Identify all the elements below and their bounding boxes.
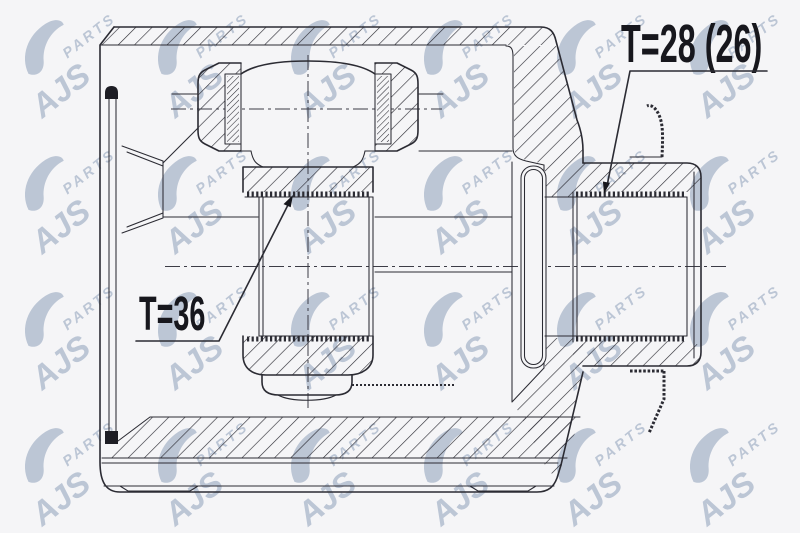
needle-bearings-left <box>227 76 239 142</box>
interior-funnel <box>122 146 163 233</box>
inner-spline-count-label: T=36 <box>139 288 205 341</box>
cv-joint-cross-section-drawing: AJS PARTS <box>0 0 800 533</box>
drawing-canvas: AJS PARTS <box>0 0 800 533</box>
dust-shield-hook-top <box>647 105 663 157</box>
needle-bearings-right <box>377 76 389 142</box>
rod-bottom-block <box>105 431 118 444</box>
snap-ring-rod <box>105 86 118 444</box>
outer-spline-count-label: T=28 (26) <box>621 15 762 74</box>
seal-plate <box>521 166 546 368</box>
dust-shield-hook-bottom <box>649 371 664 433</box>
rod-top-cap <box>105 86 118 99</box>
